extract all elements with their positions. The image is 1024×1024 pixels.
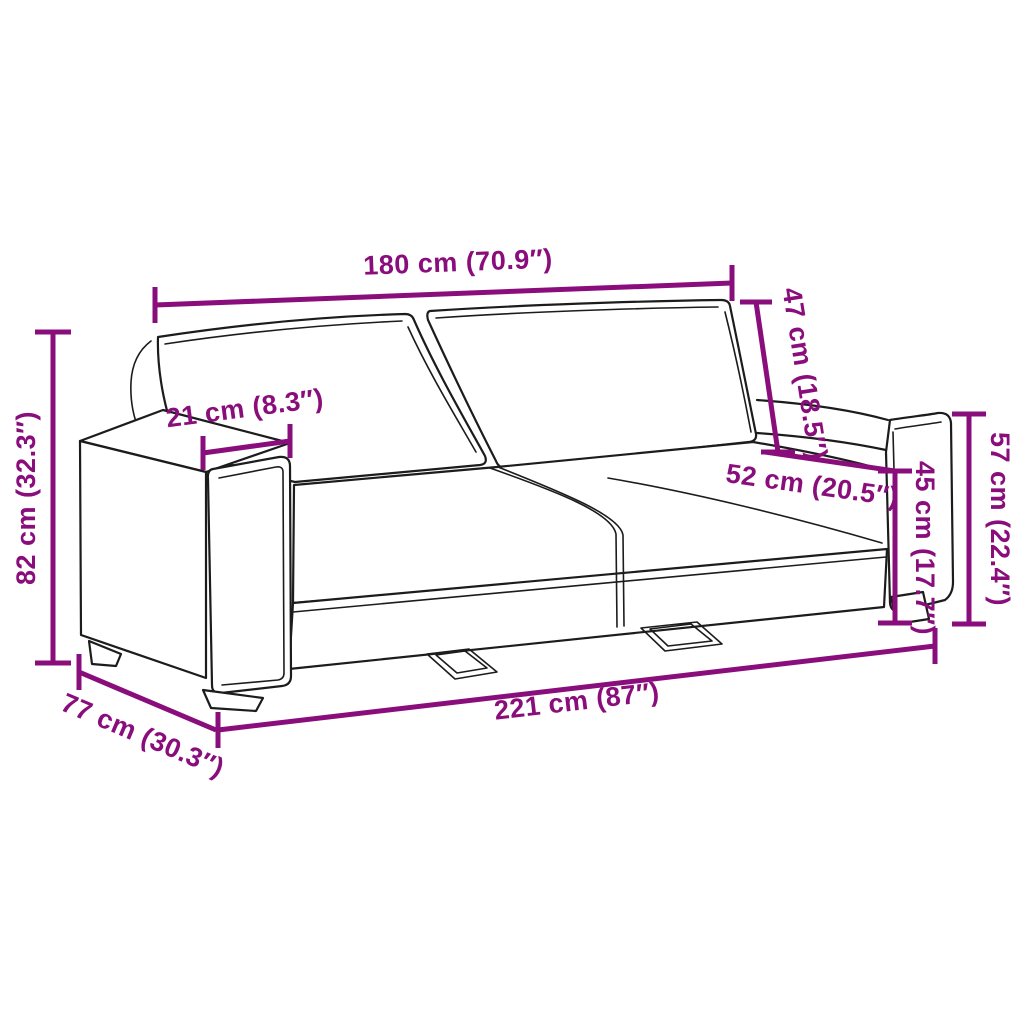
dim-overall-height-label: 82 cm (32.3″) <box>11 411 41 585</box>
dim-armrest-height: 57 cm (22.4″) <box>952 414 1015 624</box>
armrest-left-side <box>80 441 206 678</box>
dim-overall-height: 82 cm (32.3″) <box>11 332 71 663</box>
foot-left-front <box>203 690 263 711</box>
dim-overall-width-label: 221 cm (87″) <box>493 677 661 726</box>
dim-backrest-height-line <box>756 302 778 452</box>
armrest-left-front <box>208 457 291 693</box>
sled-leg-left <box>427 649 497 679</box>
dim-seat-height-label: 45 cm (17.7″) <box>910 461 940 635</box>
sofa-drawing <box>80 300 953 711</box>
dimension-diagram-stage: 180 cm (70.9″) 47 cm (18.5″) 21 cm (8.3″… <box>0 0 1024 1024</box>
dim-armrest-height-label: 57 cm (22.4″) <box>985 432 1015 606</box>
sofa-dimension-diagram: 180 cm (70.9″) 47 cm (18.5″) 21 cm (8.3″… <box>0 0 1024 1024</box>
dim-back-width-label: 180 cm (70.9″) <box>363 243 554 280</box>
dim-overall-depth-label: 77 cm (30.3″) <box>57 687 229 783</box>
